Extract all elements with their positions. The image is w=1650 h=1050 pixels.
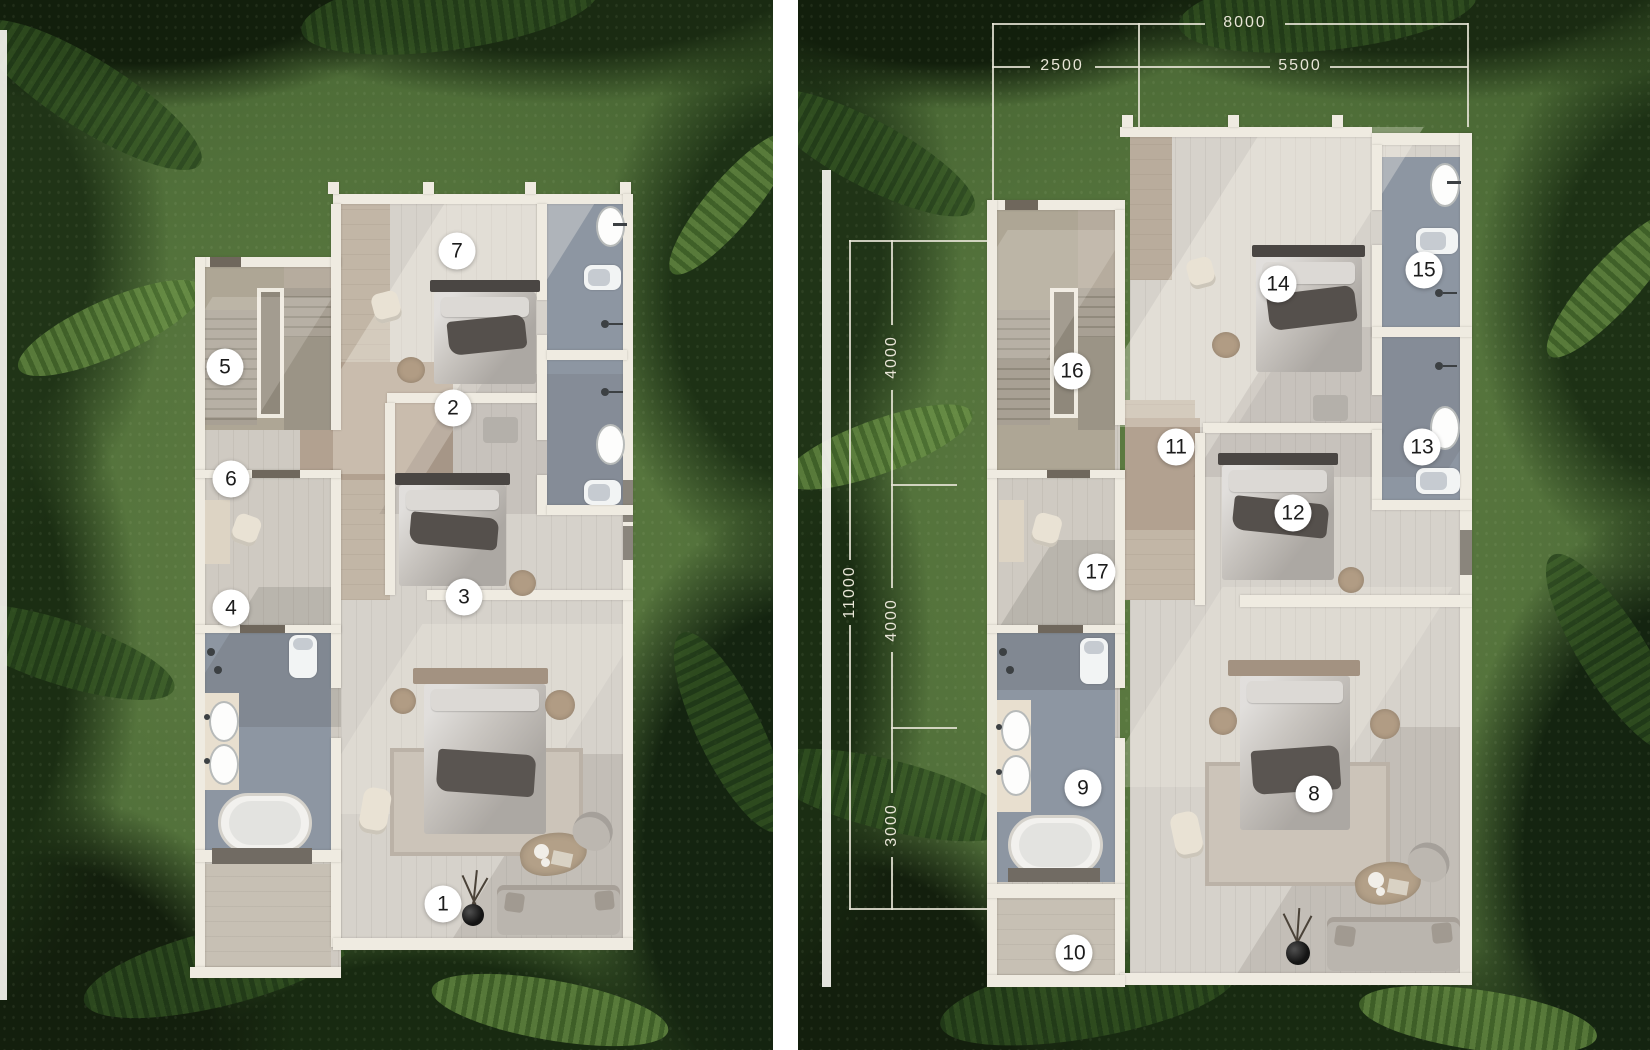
shower-head-icon (999, 648, 1007, 656)
marker-9[interactable]: 9 (1065, 770, 1102, 807)
faucet-icon (204, 714, 210, 720)
marker-5[interactable]: 5 (207, 349, 244, 386)
window (1460, 530, 1472, 575)
wall-pier (1228, 115, 1239, 127)
marker-13[interactable]: 13 (1404, 429, 1441, 466)
sofa-pillow (504, 892, 525, 913)
dimension-tick (891, 727, 957, 729)
stair-landing (284, 267, 331, 288)
wall (331, 738, 341, 947)
sink-icon (596, 424, 625, 465)
dimension-line (849, 625, 851, 910)
dimension-tick (849, 908, 987, 910)
dimension-line (1095, 66, 1270, 68)
sink-icon (1430, 163, 1460, 207)
side-table-icon (1370, 709, 1400, 739)
wall (310, 850, 341, 862)
bed-icon (430, 280, 540, 292)
wall (1120, 973, 1472, 985)
sink-icon (1001, 755, 1031, 796)
wall (1195, 433, 1205, 605)
faucet-icon (996, 724, 1002, 730)
dimension-tick (1138, 23, 1140, 130)
wall (385, 403, 395, 595)
pouf-icon (1212, 332, 1240, 358)
dimension-line (891, 240, 893, 325)
marker-8[interactable]: 8 (1296, 776, 1333, 813)
bed-headboard (1228, 660, 1360, 676)
dimension-tick (992, 23, 994, 200)
floor-hallway (1130, 137, 1172, 280)
toilet-icon (293, 638, 313, 650)
sofa-pillow (1334, 925, 1357, 948)
stair-landing (284, 337, 331, 430)
shower-head-icon (207, 648, 215, 656)
toilet-icon (1084, 641, 1104, 654)
marker-12[interactable]: 12 (1275, 495, 1312, 532)
door-lintel (1038, 625, 1083, 633)
toilet-icon (1420, 472, 1447, 490)
plate (534, 844, 549, 859)
marker-11[interactable]: 11 (1158, 429, 1195, 466)
marker-3[interactable]: 3 (446, 579, 483, 616)
sink-icon (596, 206, 625, 247)
plot-boundary-line (822, 170, 831, 987)
side-table-icon (390, 688, 416, 714)
shower-arm (1443, 365, 1457, 367)
bed-icon (1218, 453, 1338, 465)
shower-head-icon (601, 320, 609, 328)
panel-divider (773, 0, 798, 1050)
wall (1240, 595, 1472, 607)
wall (987, 975, 1125, 987)
dimension-line (992, 23, 1205, 25)
bed-icon (395, 473, 510, 485)
marker-1[interactable]: 1 (425, 886, 462, 923)
side-table-icon (545, 690, 575, 720)
wall (1372, 245, 1382, 395)
floor-plan-collage: 8000 2500 5500 11000 4000 4000 3000 1234… (0, 0, 1650, 1050)
dimension-line (891, 857, 893, 910)
marker-16[interactable]: 16 (1054, 353, 1091, 390)
floor-corridor (203, 864, 331, 967)
pillow (1247, 681, 1343, 703)
dresser-icon (483, 417, 518, 443)
door-lintel (1005, 200, 1038, 210)
marker-17[interactable]: 17 (1079, 554, 1116, 591)
faucet-icon (613, 223, 627, 226)
dresser-icon (1313, 395, 1348, 421)
plate (1368, 872, 1384, 888)
shower-head-icon (214, 666, 222, 674)
vase-icon (462, 904, 484, 926)
dimension-label-segment: 5500 (1278, 57, 1322, 75)
wall-pier (328, 182, 339, 194)
stair-landing (1078, 210, 1115, 288)
wall (1372, 500, 1472, 510)
side-table-icon (1209, 707, 1237, 735)
dimension-label-segment: 2500 (1040, 57, 1084, 75)
bed-icon (1252, 245, 1365, 257)
wall (1372, 145, 1382, 210)
dimension-line (849, 240, 851, 560)
bath-mat (1008, 868, 1100, 882)
wall (537, 335, 547, 440)
floor-corridor (997, 898, 1115, 975)
stairs-icon (997, 310, 1050, 425)
marker-4[interactable]: 4 (213, 590, 250, 627)
sofa-pillow (1431, 922, 1453, 944)
plate (541, 858, 550, 867)
marker-10[interactable]: 10 (1056, 935, 1093, 972)
marker-7[interactable]: 7 (439, 233, 476, 270)
pouf-icon (397, 357, 425, 383)
wall (1372, 133, 1472, 145)
shower-arm (1443, 292, 1457, 294)
marker-6[interactable]: 6 (213, 461, 250, 498)
side-table-icon (509, 570, 536, 596)
wall (331, 204, 341, 430)
shower-head-icon (601, 388, 609, 396)
wall (331, 470, 341, 688)
sofa-pillow (594, 890, 615, 911)
window (623, 526, 633, 560)
pillow (406, 490, 499, 510)
wall (1203, 423, 1382, 433)
wall-pier (423, 182, 434, 194)
wall-pier (1122, 115, 1133, 127)
wall (1115, 738, 1125, 975)
dimension-tick (891, 484, 957, 486)
bed-headboard (413, 668, 548, 684)
dimension-tick (1467, 23, 1469, 127)
wall (623, 194, 633, 950)
wall (1115, 210, 1125, 425)
pillow (1229, 470, 1327, 492)
dimension-line (891, 390, 893, 588)
side-table-icon (1338, 567, 1364, 593)
toilet-icon (588, 269, 610, 286)
stairs-icon (284, 288, 331, 337)
wall (547, 505, 633, 515)
wall-pier (620, 182, 631, 194)
toilet-icon (588, 484, 610, 501)
dimension-label-total-height: 11000 (841, 565, 859, 618)
dimension-line (891, 652, 893, 793)
sink-icon (209, 701, 239, 742)
blanket (436, 749, 537, 798)
wall-pier (1332, 115, 1343, 127)
stair-railing (257, 288, 284, 418)
dimension-label-total-width: 8000 (1223, 14, 1267, 32)
dimension-tick (849, 240, 987, 242)
faucet-icon (996, 769, 1002, 775)
shower-head-icon (1435, 289, 1443, 297)
shower-arm (609, 391, 623, 393)
plot-boundary-line (0, 30, 7, 1000)
marker-14[interactable]: 14 (1260, 266, 1297, 303)
wall-pier (525, 182, 536, 194)
desk-icon (205, 500, 230, 564)
vase-icon (1286, 941, 1310, 965)
bathtub-icon (1019, 823, 1092, 867)
dimension-line (1285, 23, 1468, 25)
marker-2[interactable]: 2 (435, 390, 472, 427)
window (623, 480, 633, 522)
shower-head-icon (1435, 362, 1443, 370)
wall (987, 884, 1125, 898)
shower-arm (609, 323, 623, 325)
wall (190, 967, 341, 978)
wall (195, 257, 205, 978)
wall (333, 194, 633, 204)
wall (1115, 470, 1125, 688)
dimension-label-segment: 3000 (883, 803, 901, 847)
wall (547, 350, 627, 360)
bath-mat (212, 848, 312, 864)
plate (1376, 887, 1385, 896)
faucet-icon (1447, 181, 1461, 184)
door-lintel (252, 470, 300, 478)
dimension-label-segment: 4000 (883, 598, 901, 642)
dimension-line (992, 66, 1030, 68)
wall (1120, 127, 1372, 137)
door-lintel (240, 625, 285, 633)
wall (333, 938, 633, 950)
wall (1372, 327, 1472, 337)
bathtub-icon (229, 801, 301, 845)
toilet-icon (1420, 232, 1446, 250)
wall (987, 200, 997, 987)
desk-icon (999, 500, 1024, 562)
sink-icon (1001, 710, 1031, 751)
door-lintel (1047, 470, 1090, 478)
shower-head-icon (1006, 666, 1014, 674)
door-lintel (210, 257, 241, 267)
dimension-label-segment: 4000 (883, 335, 901, 379)
dimension-line (1330, 66, 1468, 68)
stairs-icon (1078, 288, 1115, 337)
wall (537, 475, 547, 515)
pillow (431, 689, 539, 711)
marker-15[interactable]: 15 (1406, 252, 1443, 289)
faucet-icon (204, 758, 210, 764)
sink-icon (209, 744, 239, 785)
wall (1372, 430, 1382, 500)
